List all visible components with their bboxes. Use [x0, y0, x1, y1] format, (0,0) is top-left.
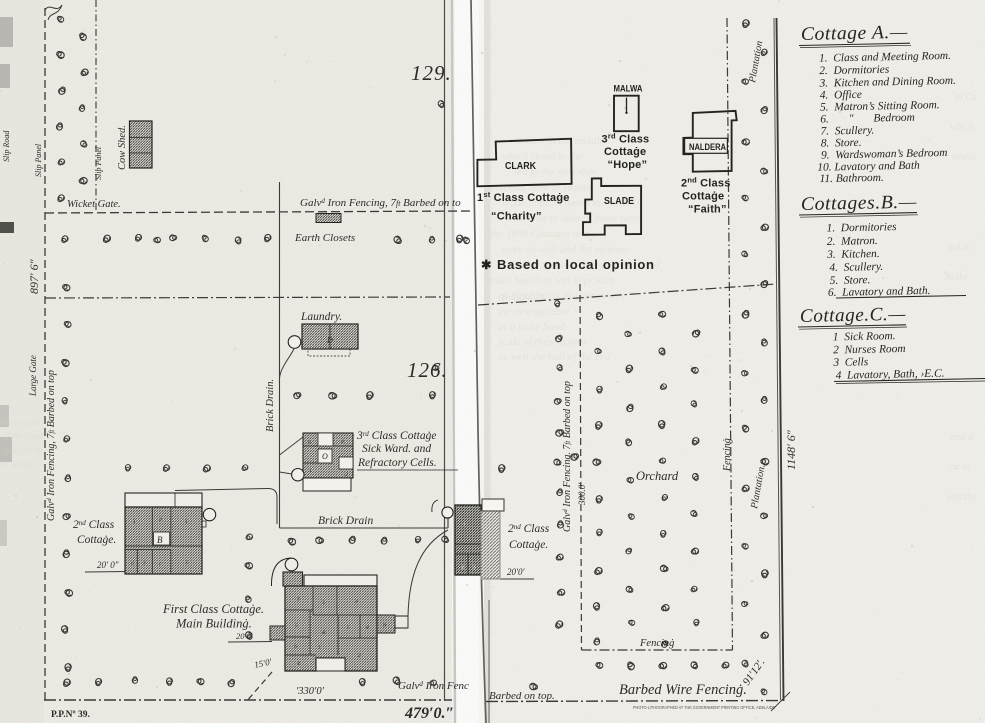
svg-text:5: 5 — [295, 623, 298, 629]
svg-text:“Hope”: “Hope” — [608, 159, 648, 171]
svg-text:for th: for th — [948, 462, 970, 473]
svg-text:20′0′: 20′0′ — [507, 567, 525, 577]
svg-text:of the hands: of the hands — [2, 431, 46, 441]
svg-text:8: 8 — [366, 625, 369, 631]
svg-text:Fencinġ: Fencinġ — [722, 438, 733, 472]
svg-text:479′0.″: 479′0.″ — [404, 705, 454, 722]
svg-text:Cottage.C.—: Cottage.C.— — [800, 304, 906, 327]
svg-text:SLADE: SLADE — [604, 195, 634, 207]
svg-text:8. Store.: 8. Store. — [821, 137, 862, 150]
svg-text:wheat: wheat — [952, 152, 976, 163]
svg-text:Sick Ward. and: Sick Ward. and — [362, 443, 431, 455]
svg-text:NALDERA: NALDERA — [689, 142, 726, 152]
svg-text:Slip Panel: Slip Panel — [34, 143, 43, 177]
svg-text:1148′ 6″: 1148′ 6″ — [784, 429, 798, 470]
svg-text:3 Cells: 3 Cells — [832, 356, 869, 369]
svg-text:Cottaġe.: Cottaġe. — [509, 539, 548, 551]
svg-text:in Ca: in Ca — [955, 92, 977, 103]
svg-text:CLARK: CLARK — [505, 160, 536, 172]
svg-text:2: 2 — [159, 517, 162, 523]
svg-text:Refractory Cells.: Refractory Cells. — [357, 457, 437, 469]
svg-text:5: 5 — [473, 565, 476, 571]
svg-text:were as well and the summer: were as well and the summer — [502, 244, 630, 256]
svg-text:6. ″ Bedroom: 6. ″ Bedroom — [820, 112, 915, 126]
svg-text:Based on local opinion: Based on local opinion — [497, 257, 655, 272]
svg-text:First Class Cottaġe.: First Class Cottaġe. — [162, 602, 264, 616]
svg-text:Large Gate: Large Gate — [28, 355, 38, 397]
svg-text:1 Sick Room.: 1 Sick Room. — [833, 330, 896, 343]
svg-text:7. Scullery.: 7. Scullery. — [820, 125, 874, 138]
svg-text:1. Dormitories: 1. Dormitories — [826, 221, 897, 234]
svg-text:“Charity”: “Charity” — [491, 211, 542, 223]
svg-text:5: 5 — [347, 625, 350, 631]
svg-text:3: 3 — [321, 600, 325, 606]
svg-text:9: 9 — [383, 623, 386, 629]
svg-text:D: D — [326, 336, 333, 345]
svg-text:✱: ✱ — [481, 258, 492, 272]
svg-text:20′ 0″: 20′ 0″ — [97, 560, 119, 570]
svg-text:7: 7 — [297, 597, 300, 603]
svg-text:300.0′: 300.0′ — [577, 482, 587, 506]
svg-text:129.: 129. — [411, 61, 452, 85]
svg-text:4 Lavatory, Bath, ›E.C.: 4 Lavatory, Bath, ›E.C. — [836, 368, 945, 382]
svg-text:Cottages.B.—: Cottages.B.— — [801, 192, 917, 215]
svg-text:2: 2 — [358, 653, 361, 659]
svg-text:O: O — [322, 452, 328, 461]
svg-text:126.: 126. — [407, 358, 448, 382]
svg-text:11. Bathroom.: 11. Bathroom. — [819, 172, 883, 185]
svg-text:led to: led to — [948, 242, 971, 253]
svg-text:4: 4 — [461, 564, 464, 571]
svg-text:than on an: than on an — [2, 417, 41, 427]
svg-text:1: 1 — [318, 645, 321, 651]
svg-text:Galvd Iron Fenc: Galvd Iron Fenc — [398, 680, 469, 692]
svg-text:Brick Drain: Brick Drain — [318, 515, 374, 527]
svg-text:was the: was the — [946, 492, 977, 503]
svg-text:Laundry.: Laundry. — [300, 311, 342, 323]
svg-text:main building was kept with: main building was kept with — [490, 275, 615, 287]
svg-text:PHOTO-LITHOGRAPHED AT THE GOVE: PHOTO-LITHOGRAPHED AT THE GOVERNMENT PRI… — [633, 705, 775, 710]
svg-text:1: 1 — [185, 519, 188, 525]
svg-text:Fencinġ: Fencinġ — [639, 638, 674, 649]
svg-text:897′ 6″: 897′ 6″ — [27, 258, 41, 294]
svg-text:Orchard: Orchard — [636, 469, 679, 483]
svg-text:Cottage A.—: Cottage A.— — [801, 22, 908, 45]
svg-text:Earth Closets: Earth Closets — [294, 232, 355, 244]
svg-text:4: 4 — [297, 660, 300, 667]
svg-text:8: 8 — [308, 440, 311, 446]
svg-text:3rd Class Cottaġe: 3rd Class Cottaġe — [356, 430, 436, 442]
svg-text:“Faith”: “Faith” — [688, 204, 727, 216]
svg-text:2 Nurses Room: 2 Nurses Room — [833, 343, 906, 357]
svg-text:5: 5 — [186, 560, 189, 566]
svg-text:20′0′: 20′0′ — [236, 631, 253, 641]
svg-text:Barbed on top.: Barbed on top. — [489, 690, 555, 702]
svg-text:Railw: Railw — [944, 272, 969, 283]
svg-text:at it to be hand: at it to be hand — [498, 321, 565, 333]
svg-text:Galvd Iron Fencing, 7ft Barbed: Galvd Iron Fencing, 7ft Barbed on to — [300, 197, 461, 209]
svg-text:4. Office: 4. Office — [820, 89, 862, 102]
svg-text:1: 1 — [463, 521, 466, 527]
svg-text:which: which — [950, 122, 974, 133]
svg-text:Wicket Gate.: Wicket Gate. — [67, 199, 121, 210]
svg-text:Slip Road: Slip Road — [2, 130, 11, 162]
svg-text:Barbed Wire Fencinġ.: Barbed Wire Fencinġ. — [619, 682, 747, 698]
svg-text:2. Dormitories: 2. Dormitories — [819, 64, 890, 77]
svg-text:scale of these rooms: scale of these rooms — [498, 336, 587, 348]
svg-text:and w: and w — [950, 432, 975, 443]
svg-text:Main Buildinġ.: Main Buildinġ. — [175, 617, 252, 631]
svg-text:the new suitable: the new suitable — [498, 306, 570, 318]
svg-text:′330′0′: ′330′0′ — [296, 686, 325, 697]
svg-text:2. Matron.: 2. Matron. — [827, 235, 878, 248]
svg-text:4. Scullery.: 4. Scullery. — [829, 261, 883, 274]
svg-text:Cow Shed.: Cow Shed. — [117, 125, 128, 170]
svg-text:6. Lavatory and Bath.: 6. Lavatory and Bath. — [828, 285, 931, 299]
svg-text:4: 4 — [341, 438, 344, 445]
svg-text:the 1898 Cottages and: the 1898 Cottages and — [490, 228, 590, 240]
svg-text:4: 4 — [355, 598, 358, 605]
svg-text:Brick Drain.: Brick Drain. — [265, 379, 276, 432]
svg-text:MALWA: MALWA — [614, 84, 643, 94]
svg-text:Cottaġe: Cottaġe — [604, 146, 646, 158]
svg-text:1: 1 — [133, 519, 136, 525]
svg-text:dr at his: dr at his — [2, 459, 33, 469]
svg-text:B: B — [157, 535, 163, 545]
svg-text:Cottaġe: Cottaġe — [682, 191, 724, 203]
svg-text:1st Class Cottaġe: 1st Class Cottaġe — [477, 190, 570, 204]
svg-text:Cottaġe.: Cottaġe. — [77, 534, 116, 546]
svg-text:2: 2 — [345, 472, 348, 478]
svg-text:6: 6 — [131, 561, 134, 567]
svg-text:Slip Panel: Slip Panel — [94, 146, 103, 180]
svg-text:3. Kitchen.: 3. Kitchen. — [826, 248, 880, 261]
svg-text:7: 7 — [143, 561, 146, 567]
svg-text:P.P.Nº 39.: P.P.Nº 39. — [51, 710, 90, 720]
svg-text:as well the hall of the era: as well the hall of the era — [498, 351, 610, 363]
svg-text:5. Store.: 5. Store. — [830, 274, 871, 287]
svg-text:Galvd Iron Fencing, 7ft Barbed: Galvd Iron Fencing, 7ft Barbed on top — [46, 370, 57, 521]
svg-text:6: 6 — [294, 644, 297, 650]
svg-text:1: 1 — [309, 468, 312, 474]
svg-text:Galvd Iron Fencing. 7ft Barbed: Galvd Iron Fencing. 7ft Barbed on top — [562, 381, 573, 532]
